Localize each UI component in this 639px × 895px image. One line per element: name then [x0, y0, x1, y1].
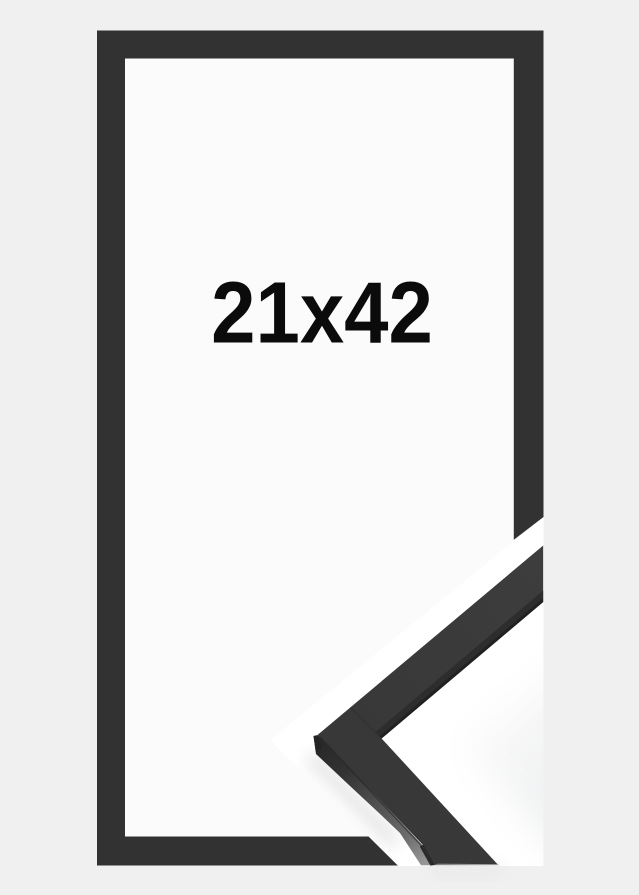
svg-text:21x42: 21x42: [211, 263, 433, 361]
